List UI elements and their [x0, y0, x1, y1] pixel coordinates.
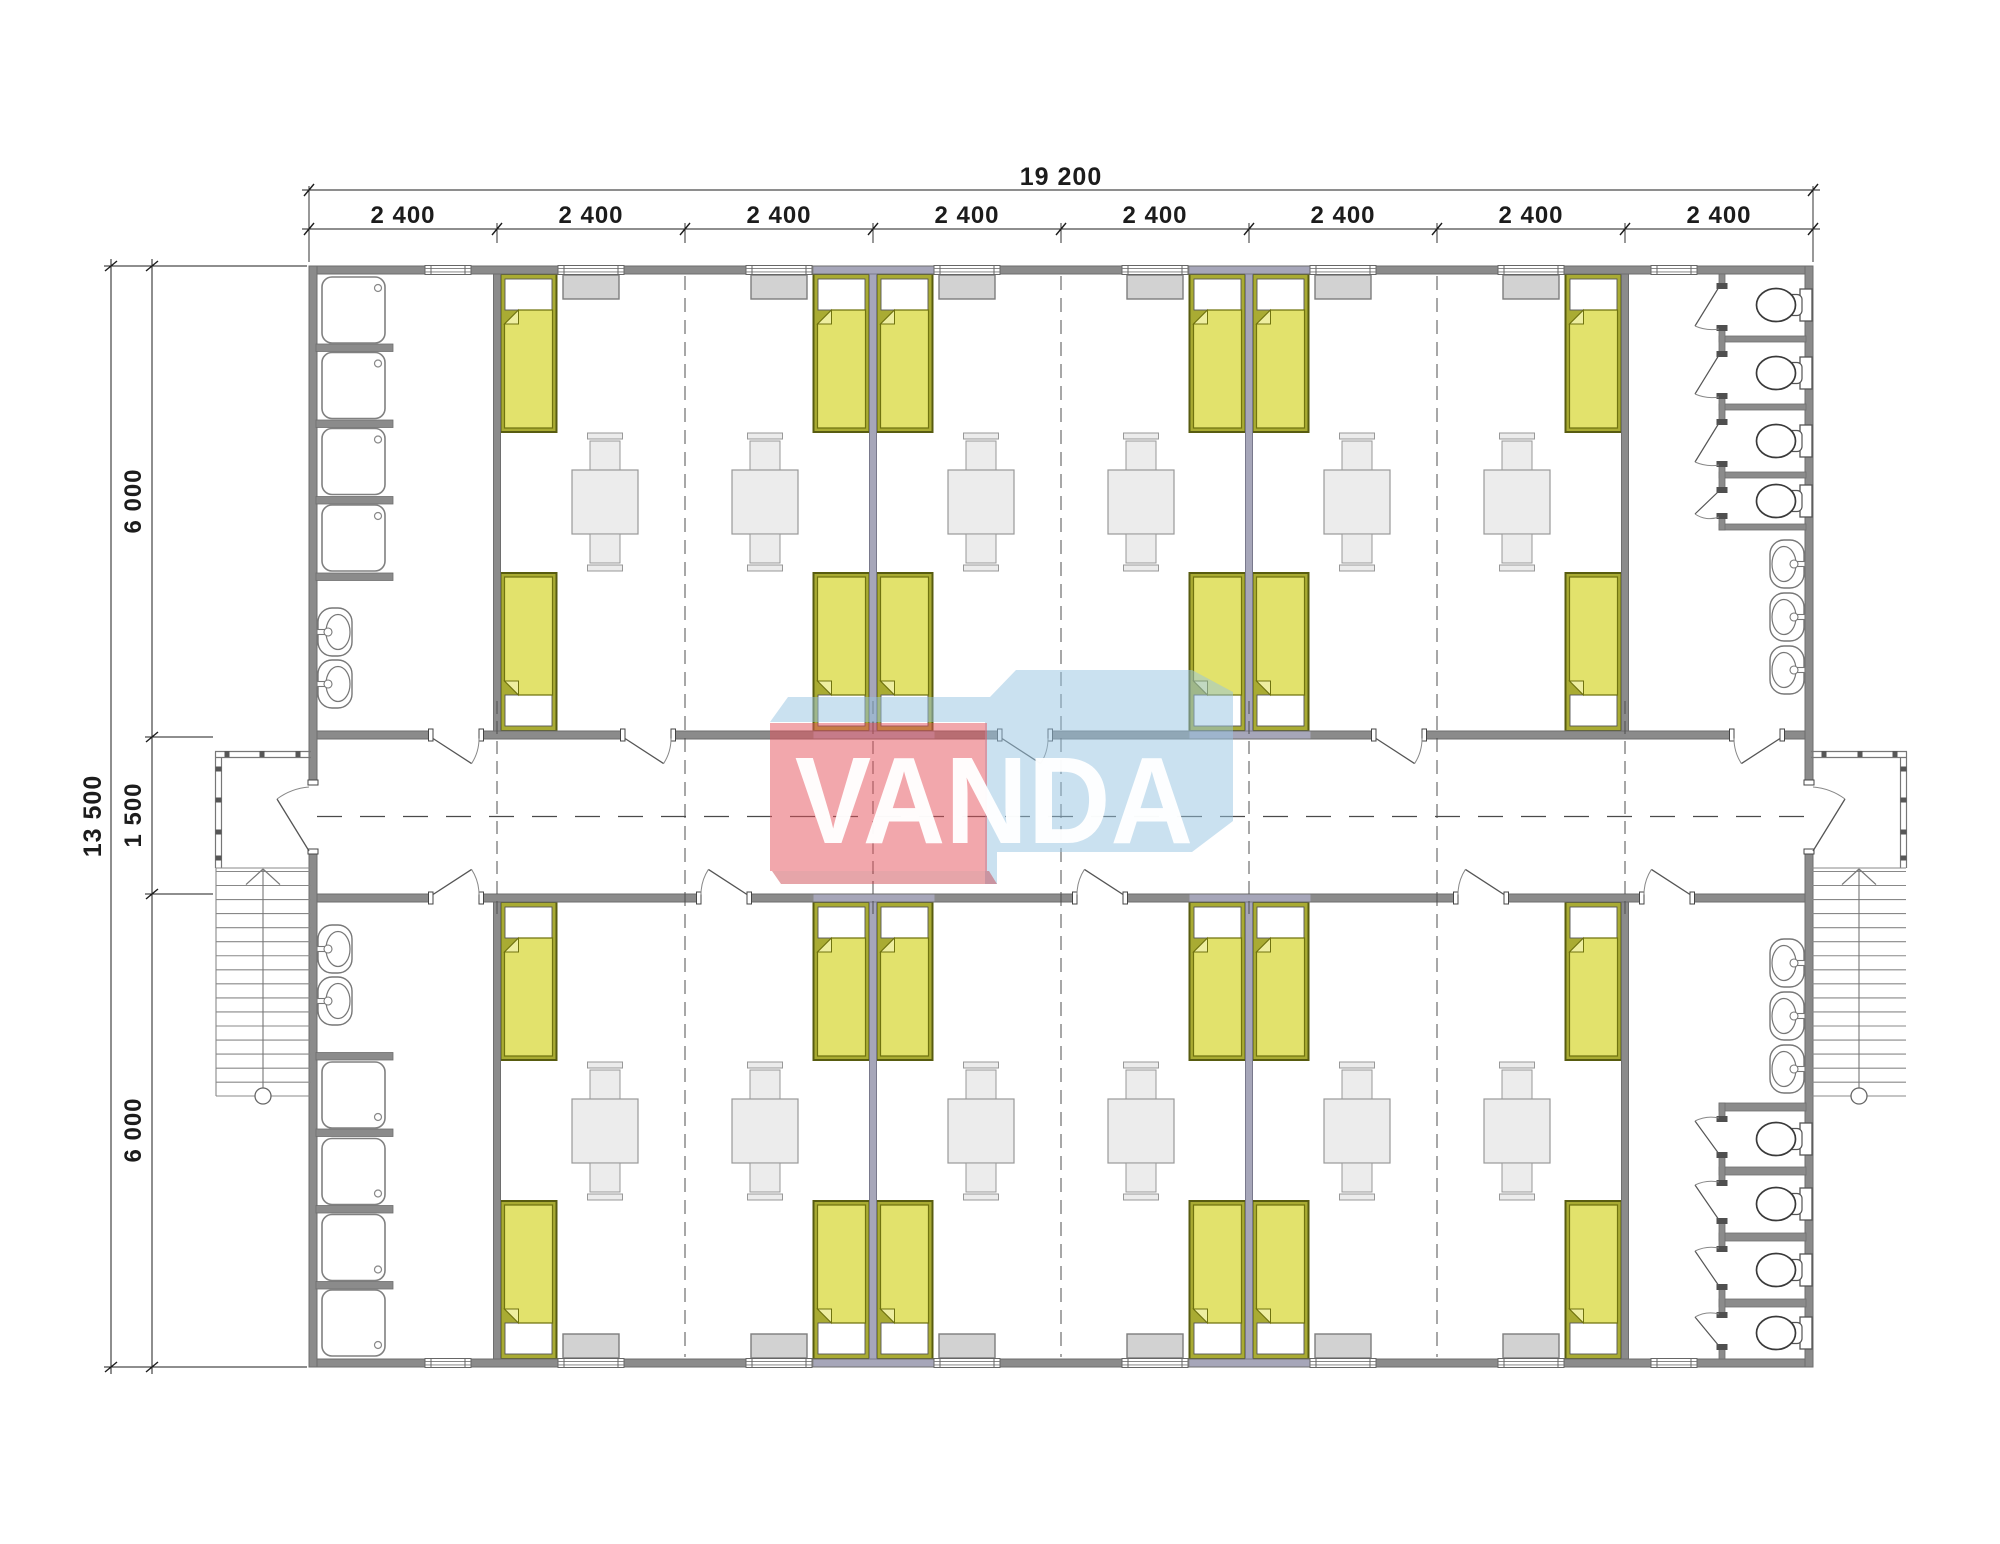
svg-text:2 400: 2 400 [934, 202, 999, 229]
svg-text:2 400: 2 400 [558, 202, 623, 229]
svg-text:2 400: 2 400 [1310, 202, 1375, 229]
svg-text:2 400: 2 400 [1686, 202, 1751, 229]
svg-text:13 500: 13 500 [79, 775, 107, 857]
svg-text:6 000: 6 000 [120, 1097, 147, 1162]
svg-text:19 200: 19 200 [1020, 163, 1102, 191]
svg-text:2 400: 2 400 [1498, 202, 1563, 229]
svg-text:2 400: 2 400 [370, 202, 435, 229]
svg-text:VANDA: VANDA [795, 732, 1193, 870]
svg-text:2 400: 2 400 [1122, 202, 1187, 229]
svg-text:1 500: 1 500 [120, 782, 147, 847]
svg-text:2 400: 2 400 [746, 202, 811, 229]
svg-text:6 000: 6 000 [120, 468, 147, 533]
